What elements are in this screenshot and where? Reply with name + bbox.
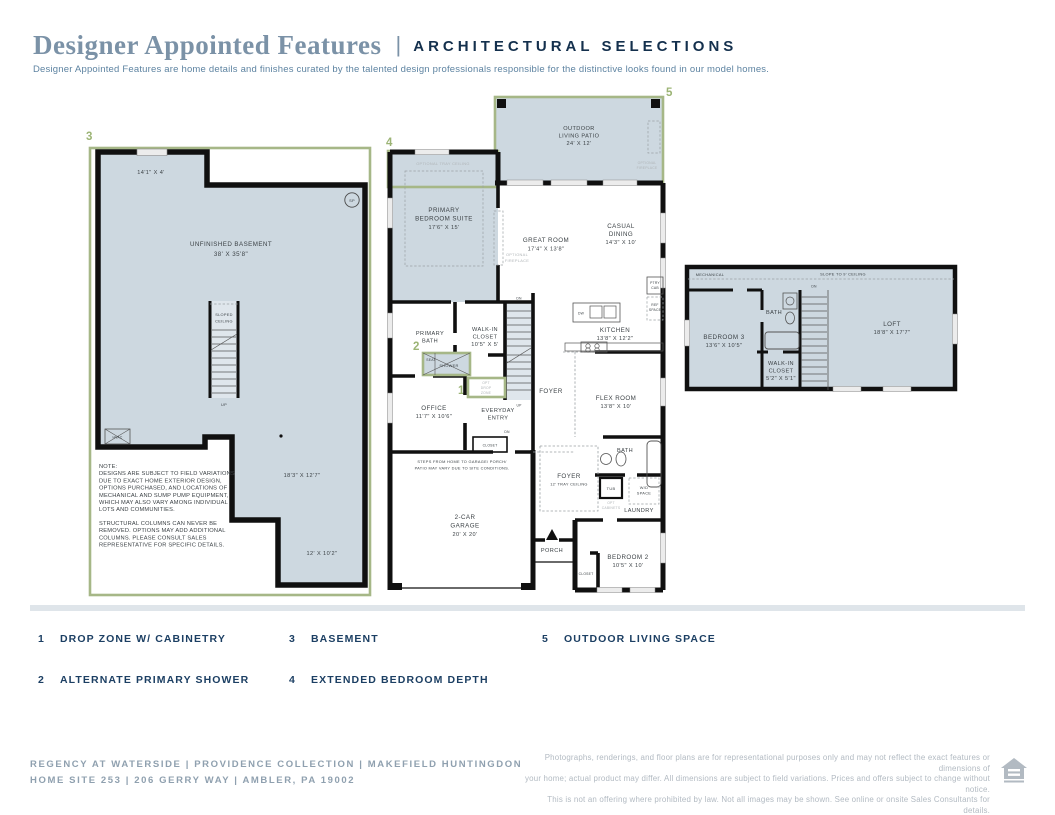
svg-text:OPT: OPT: [482, 381, 490, 385]
everyday-entry-label: EVERYDAY: [481, 408, 514, 414]
community-line2: HOME SITE 253 | 206 GERRY WAY | AMBLER, …: [30, 773, 522, 789]
svg-text:DN: DN: [504, 430, 510, 434]
drop-zone: OPT DROP ZONE: [468, 378, 505, 397]
structural-column: [279, 434, 282, 437]
svg-text:CAB: CAB: [651, 286, 659, 290]
svg-text:DESIGNS ARE SUBJECT TO FIELD V: DESIGNS ARE SUBJECT TO FIELD VARIATIONS: [99, 471, 235, 477]
svg-text:LOTS AND COMMUNITIES.: LOTS AND COMMUNITIES.: [99, 507, 175, 513]
svg-text:DN: DN: [516, 297, 522, 301]
legend-item-5: 5 OUTDOOR LIVING SPACE: [542, 633, 716, 645]
svg-text:13'6" X 10'5": 13'6" X 10'5": [706, 343, 743, 349]
section-title: ARCHITECTURAL SELECTIONS: [413, 38, 737, 55]
walkin-closet-label: WALK-IN: [472, 327, 498, 333]
equal-housing-logo: [1000, 757, 1028, 783]
sloped-ceiling-label1: SLOPED: [215, 312, 233, 317]
svg-text:REMOVED. OPTIONS MAY ADD ADDIT: REMOVED. OPTIONS MAY ADD ADDITIONAL: [99, 528, 226, 534]
disclaimer: Photographs, renderings, and floor plans…: [520, 753, 990, 815]
basement-dim-mid: 18'3" X 12'7": [284, 473, 321, 479]
svg-text:OPTIONAL: OPTIONAL: [638, 161, 657, 165]
bedroom2-closet-label: CLOSET: [579, 572, 594, 576]
bedroom2-label: BEDROOM 2: [607, 554, 648, 561]
svg-text:MECHANICAL AND SUMP PUMP EQUIP: MECHANICAL AND SUMP PUMP EQUIPMENT,: [99, 493, 229, 499]
svg-text:SHOWER: SHOWER: [439, 363, 458, 368]
office-label: OFFICE: [421, 405, 446, 412]
brochure-page: Designer Appointed Features|ARCHITECTURA…: [0, 0, 1055, 815]
basement-plan: SP 14'1" X 4' UNFINISHED BASEMENT 38' X …: [85, 138, 377, 600]
great-room-label: GREAT ROOM: [523, 237, 569, 244]
svg-text:20' X 20': 20' X 20': [452, 532, 477, 538]
alternate-shower: SEAT SHOWER: [423, 353, 470, 375]
header-tagline: Designer Appointed Features are home det…: [33, 64, 769, 75]
legend-item-2: 2 ALTERNATE PRIMARY SHOWER: [38, 674, 249, 686]
laundry-label: LAUNDRY: [624, 508, 653, 514]
casual-dining-label: CASUAL: [607, 223, 635, 230]
basement-room-label: UNFINISHED BASEMENT: [190, 241, 272, 248]
svg-text:OUTDOOR: OUTDOOR: [563, 126, 594, 132]
svg-text:24' X 12': 24' X 12': [566, 141, 591, 147]
svg-text:NOTE:: NOTE:: [99, 464, 118, 470]
basement-up-label: UP: [221, 402, 227, 407]
porch-label: PORCH: [541, 548, 563, 554]
svg-text:DUE TO EXACT HOME EXTERIOR DES: DUE TO EXACT HOME EXTERIOR DESIGN,: [99, 478, 222, 484]
svg-text:18'8" X 17'7": 18'8" X 17'7": [874, 330, 911, 336]
svg-text:PATIO MAY VARY DUE TO SITE CON: PATIO MAY VARY DUE TO SITE CONDITIONS.: [415, 466, 510, 471]
svg-text:REPRESENTATIVE FOR SPECIFIC DE: REPRESENTATIVE FOR SPECIFIC DETAILS.: [99, 543, 225, 549]
bath2-label: BATH: [617, 448, 633, 454]
svg-text:OPTIONS PURCHASED, AND LOCATIO: OPTIONS PURCHASED, AND LOCATIONS OF: [99, 486, 228, 492]
svg-text:CABINETS: CABINETS: [602, 506, 621, 510]
foyer-main-label: FOYER: [557, 473, 581, 480]
svg-text:10'5" X 5': 10'5" X 5': [471, 342, 498, 348]
garage-label: 2-CAR: [455, 514, 476, 521]
upper-bath-label: BATH: [766, 310, 782, 316]
svg-text:17'4" X 13'8": 17'4" X 13'8": [528, 247, 565, 253]
svg-text:STRUCTURAL COLUMNS CAN NEVER B: STRUCTURAL COLUMNS CAN NEVER BE: [99, 521, 217, 527]
svg-text:BATH: BATH: [422, 339, 438, 345]
upper-wic-label: WALK-IN: [768, 361, 794, 367]
steps-note: STEPS FROM HOME TO GARAGE/ PORCH/: [417, 459, 507, 464]
svg-text:5'2" X 5'1": 5'2" X 5'1": [766, 376, 796, 382]
outdoor-living-patio: OUTDOOR LIVING PATIO 24' X 12' OPTIONAL …: [495, 97, 663, 182]
bedroom3-label: BEDROOM 3: [703, 334, 744, 341]
community-line1: REGENCY AT WATERSIDE | PROVIDENCE COLLEC…: [30, 757, 522, 773]
basement-room-dim: 38' X 35'8": [214, 251, 248, 258]
upper-footprint: [687, 267, 955, 389]
primary-bath-label: PRIMARY: [416, 331, 444, 337]
community-info: REGENCY AT WATERSIDE | PROVIDENCE COLLEC…: [30, 757, 522, 789]
svg-text:FIREPLACE: FIREPLACE: [637, 166, 658, 170]
primary-suite-label: PRIMARY: [428, 207, 459, 214]
svg-text:FIREPLACE: FIREPLACE: [505, 258, 529, 263]
svg-text:14'3" X 10': 14'3" X 10': [606, 240, 637, 246]
main-floor-plan: OUTDOOR LIVING PATIO 24' X 12' OPTIONAL …: [385, 93, 670, 600]
svg-text:SPACE: SPACE: [637, 491, 652, 496]
svg-text:10'5" X 10': 10'5" X 10': [613, 563, 644, 569]
svg-text:UP: UP: [516, 404, 522, 408]
section-divider: [30, 605, 1025, 611]
legend-item-4: 4 EXTENDED BEDROOM DEPTH: [289, 674, 489, 686]
kitchen-label: KITCHEN: [600, 327, 630, 334]
svg-text:OPT: OPT: [607, 501, 615, 505]
svg-text:DW: DW: [578, 312, 585, 316]
legend-item-1: 1 DROP ZONE W/ CABINETRY: [38, 633, 226, 645]
loft-label: LOFT: [883, 321, 901, 328]
upper-floor-plan: MECHANICAL SLOPE TO 9' CEILING DN BEDROO…: [683, 262, 959, 394]
basement-dim-low: 12' X 10'2": [307, 551, 338, 557]
tray-ceiling-label: OPTIONAL TRAY CEILING: [416, 161, 470, 166]
svg-text:ZONE: ZONE: [481, 391, 492, 395]
porch-entry-arrow: [546, 529, 558, 540]
hvac-label: HVAC: [113, 436, 123, 440]
basement-window: [137, 149, 167, 156]
svg-text:12' TRAY CEILING: 12' TRAY CEILING: [550, 482, 588, 487]
basement-note: NOTE: DESIGNS ARE SUBJECT TO FIELD VARIA…: [99, 464, 235, 549]
svg-text:13'8" X 10': 13'8" X 10': [601, 404, 632, 410]
svg-text:SEAT: SEAT: [426, 358, 435, 362]
svg-text:TUB: TUB: [607, 486, 616, 491]
garage-door-line: [390, 562, 575, 588]
svg-text:ENTRY: ENTRY: [488, 416, 509, 422]
svg-text:CLOSET: CLOSET: [473, 335, 498, 341]
svg-text:17'6" X 15': 17'6" X 15': [429, 225, 460, 231]
basement-dim-top: 14'1" X 4': [137, 170, 164, 176]
svg-text:GARAGE: GARAGE: [450, 523, 479, 530]
svg-text:11'7" X 10'6": 11'7" X 10'6": [416, 414, 452, 420]
foyer-upper-label: FOYER: [539, 388, 563, 395]
page-header: Designer Appointed Features|ARCHITECTURA…: [33, 30, 737, 61]
svg-text:WHICH MAY ALSO VARY AMONG INDI: WHICH MAY ALSO VARY AMONG INDIVIDUAL: [99, 500, 228, 506]
svg-text:DROP: DROP: [481, 386, 492, 390]
sp-label: SP: [349, 198, 355, 203]
flex-room-label: FLEX ROOM: [596, 395, 637, 402]
svg-text:DINING: DINING: [609, 231, 633, 238]
svg-text:BEDROOM SUITE: BEDROOM SUITE: [415, 216, 473, 223]
svg-text:DN: DN: [811, 285, 817, 289]
cased-openings: [533, 352, 595, 452]
stairs-fill: [505, 302, 533, 400]
mechanical-label: MECHANICAL: [696, 272, 725, 277]
svg-text:PTRY: PTRY: [650, 281, 660, 285]
svg-text:REF: REF: [651, 303, 658, 307]
entry-closet-label: CLOSET: [483, 444, 498, 448]
svg-text:CLOSET: CLOSET: [769, 369, 794, 375]
svg-text:SPACE: SPACE: [649, 308, 662, 312]
svg-text:LIVING PATIO: LIVING PATIO: [559, 134, 600, 140]
svg-text:13'8" X 12'2": 13'8" X 12'2": [597, 336, 634, 342]
slope-label: SLOPE TO 9' CEILING: [820, 272, 866, 277]
svg-text:COLUMNS. PLEASE CONSULT SALES: COLUMNS. PLEASE CONSULT SALES: [99, 535, 207, 541]
svg-text:OPTIONAL: OPTIONAL: [506, 252, 529, 257]
svg-text:W/D: W/D: [640, 485, 648, 490]
page-title: Designer Appointed Features: [33, 30, 382, 60]
title-divider: |: [396, 32, 402, 57]
sloped-ceiling-label2: CEILING: [215, 319, 233, 324]
legend-item-3: 3 BASEMENT: [289, 633, 379, 645]
